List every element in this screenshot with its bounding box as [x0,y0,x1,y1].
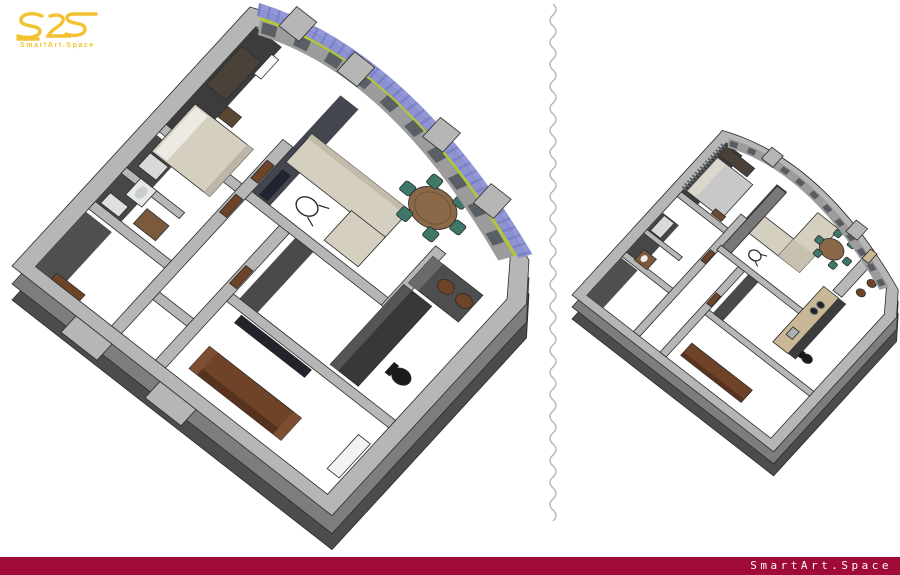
floorplan-right-svg [556,95,900,495]
floorplan-render-right [556,95,900,495]
floorplan-render-left [0,0,560,556]
floorplan-right-plan [572,118,900,452]
footer-bar: SmartArt.Space [0,557,900,575]
floorplan-left-svg [0,0,560,556]
footer-brand-text: SmartArt.Space [750,557,900,575]
floorplan-left-plan [0,0,560,532]
presentation-slide: SmartArt.Space [0,0,900,575]
